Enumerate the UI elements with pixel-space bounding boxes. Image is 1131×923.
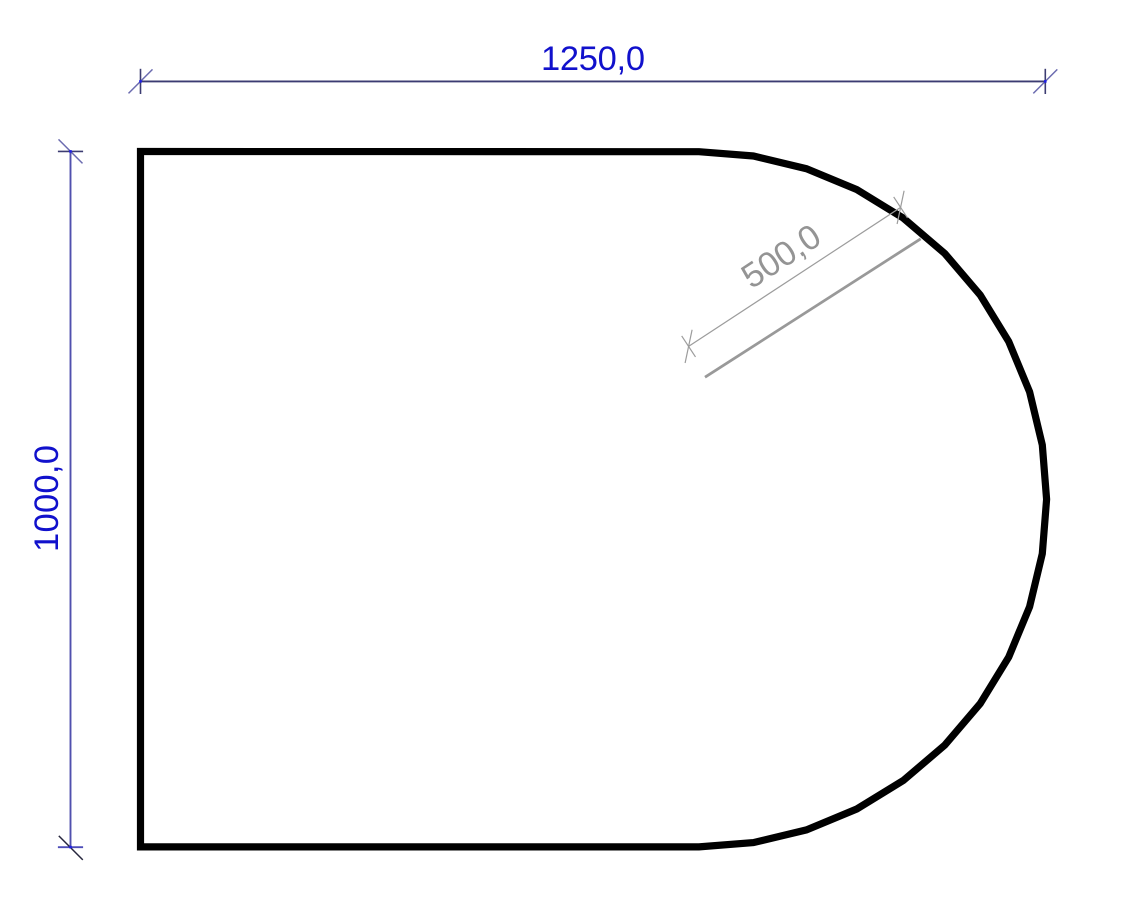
svg-text:1250,0: 1250,0 — [541, 40, 645, 78]
svg-text:1000,0: 1000,0 — [28, 445, 66, 552]
